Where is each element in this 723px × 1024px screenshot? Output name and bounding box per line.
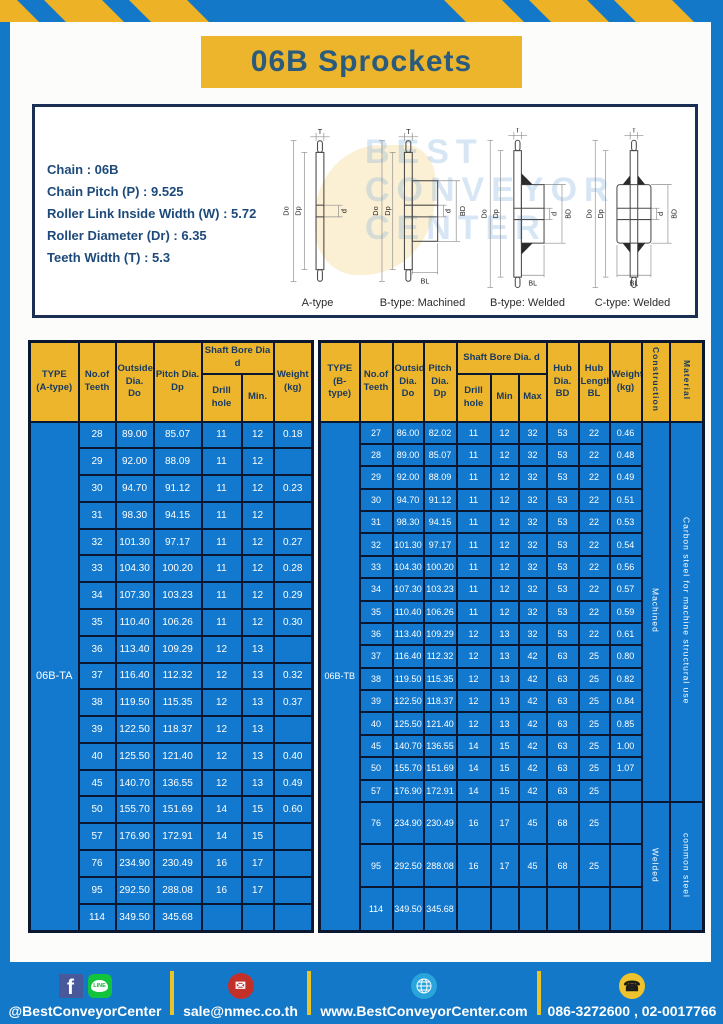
footer-email: ✉ sale@nmec.co.th [174, 962, 307, 1024]
table-cell: 11 [202, 475, 242, 502]
sprocket-c-welded-drawing: T Do Dp d BD BL [581, 128, 685, 296]
table-row: 06B-TB2786.0082.0211123253220.46Machined… [320, 422, 704, 444]
footer-phone: ☎ 086-3272600 , 02-0017766 [541, 962, 723, 1024]
table-cell: 63 [547, 780, 579, 802]
table-cell: 53 [547, 444, 579, 466]
table-cell: 112.32 [424, 645, 457, 667]
table-cell: 11 [202, 502, 242, 529]
table-cell: 0.28 [274, 555, 313, 582]
table-cell: 16 [457, 844, 491, 887]
table-cell: 11 [202, 582, 242, 609]
table-cell [610, 844, 642, 887]
table-cell: 14 [457, 757, 491, 779]
spec-line: Teeth Width (T) : 5.3 [47, 250, 265, 265]
table-cell: 32 [519, 511, 547, 533]
table-cell: 29 [79, 448, 116, 475]
table-cell: 76 [79, 850, 116, 877]
table-cell: 17 [491, 802, 519, 845]
column-header-material: Material [670, 342, 704, 422]
table-cell: 32 [519, 444, 547, 466]
table-cell: 22 [579, 511, 610, 533]
table-cell: 13 [242, 689, 274, 716]
table-cell: 136.55 [424, 735, 457, 757]
table-cell: 15 [242, 823, 274, 850]
stripe-decoration [44, 0, 124, 22]
globe-icon [411, 973, 437, 999]
table-cell: 35 [360, 601, 393, 623]
table-cell: 11 [202, 422, 242, 449]
table-cell [457, 887, 491, 932]
table-cell: 12 [242, 555, 274, 582]
column-header-outside-dia: Outside Dia. Do [393, 342, 424, 422]
page-title: 06B Sprockets [201, 36, 522, 88]
table-cell: 94.15 [154, 502, 202, 529]
table-cell: 31 [360, 511, 393, 533]
sprocket-b-welded-drawing: T Do Dp d BD BL [476, 128, 580, 296]
table-cell: 33 [360, 556, 393, 578]
table-cell: 12 [202, 689, 242, 716]
table-cell: 349.50 [116, 904, 154, 932]
table-cell: 30 [360, 489, 393, 511]
table-cell: 37 [79, 663, 116, 690]
table-cell: 11 [202, 529, 242, 556]
table-cell: 53 [547, 556, 579, 578]
table-cell: 25 [579, 757, 610, 779]
dim-label-dp: Dp [597, 209, 604, 218]
table-cell: 57 [360, 780, 393, 802]
table-cell: 35 [79, 609, 116, 636]
table-cell: 22 [579, 422, 610, 444]
table-cell: 89.00 [116, 422, 154, 449]
column-header-min: Min. [242, 374, 274, 422]
table-cell: 63 [547, 757, 579, 779]
table-cell: 12 [242, 582, 274, 609]
table-cell: 94.70 [116, 475, 154, 502]
table-cell: 118.37 [424, 690, 457, 712]
dim-label-bd: BD [458, 206, 467, 216]
table-cell: 11 [457, 601, 491, 623]
social-handle-text: @BestConveyorCenter [9, 1003, 162, 1019]
table-cell: 82.02 [424, 422, 457, 444]
table-cell: 39 [360, 690, 393, 712]
table-cell: 0.32 [274, 663, 313, 690]
table-cell: 32 [519, 556, 547, 578]
table-cell: 230.49 [424, 802, 457, 845]
top-stripes-decoration [0, 0, 723, 22]
table-cell: 0.59 [610, 601, 642, 623]
table-cell: 11 [202, 448, 242, 475]
table-cell: 0.48 [610, 444, 642, 466]
table-cell: 12 [491, 489, 519, 511]
table-cell: 45 [360, 735, 393, 757]
table-cell: 0.49 [610, 466, 642, 488]
column-header-type: TYPE (B-type) [320, 342, 360, 422]
table-cell: 114 [79, 904, 116, 932]
table-cell: 91.12 [154, 475, 202, 502]
table-cell: 91.12 [424, 489, 457, 511]
table-cell: 0.85 [610, 712, 642, 734]
dim-label-d: d [339, 209, 348, 213]
table-cell: 12 [491, 422, 519, 444]
table-cell: 31 [79, 502, 116, 529]
table-cell: 32 [519, 533, 547, 555]
table-cell: 34 [79, 582, 116, 609]
table-cell: 45 [79, 770, 116, 797]
table-cell: 29 [360, 466, 393, 488]
diagram-panel: BEST CONVEYOR CENTER Chain : 06B Chain P… [32, 104, 698, 318]
table-cell: 34 [360, 578, 393, 600]
table-cell: 0.61 [610, 623, 642, 645]
table-cell: 89.00 [393, 444, 424, 466]
table-cell: 17 [242, 877, 274, 904]
table-cell: 16 [202, 877, 242, 904]
table-cell: 151.69 [154, 796, 202, 823]
table-cell: 53 [547, 601, 579, 623]
table-cell [547, 887, 579, 932]
table-cell: 27 [360, 422, 393, 444]
table-cell: 12 [202, 636, 242, 663]
table-cell [274, 877, 313, 904]
table-cell: 38 [360, 668, 393, 690]
table-cell: 92.00 [116, 448, 154, 475]
dim-label-d: d [443, 209, 452, 213]
table-cell: 13 [242, 743, 274, 770]
spec-line: Chain : 06B [47, 162, 265, 177]
table-cell: 11 [457, 489, 491, 511]
table-cell: 53 [547, 511, 579, 533]
table-cell: 32 [519, 422, 547, 444]
column-header-weight: Weight (kg) [274, 342, 313, 422]
table-cell: 63 [547, 712, 579, 734]
table-cell: 63 [547, 668, 579, 690]
construction-cell: Machined [642, 422, 670, 802]
dim-label-t: T [406, 128, 411, 136]
table-cell: 11 [202, 555, 242, 582]
table-cell: 12 [242, 422, 274, 449]
dim-label-t: T [631, 128, 636, 135]
table-cell: 28 [79, 422, 116, 449]
table-cell [202, 904, 242, 932]
table-cell: 0.29 [274, 582, 313, 609]
diagram-label: C-type: Welded [595, 297, 671, 311]
table-cell: 40 [79, 743, 116, 770]
phone-glyph: ☎ [623, 978, 640, 995]
table-cell: 88.09 [154, 448, 202, 475]
table-cell: 33 [79, 555, 116, 582]
footer-contact-bar: f LINE @BestConveyorCenter ✉ sale@nmec.c… [0, 962, 723, 1024]
dim-label-dp: Dp [492, 209, 499, 218]
table-cell: 32 [519, 489, 547, 511]
table-cell: 0.46 [610, 422, 642, 444]
table-cell: 42 [519, 690, 547, 712]
table-cell: 88.09 [424, 466, 457, 488]
table-cell: 14 [202, 796, 242, 823]
table-cell: 13 [242, 636, 274, 663]
table-cell: 0.27 [274, 529, 313, 556]
table-cell: 22 [579, 533, 610, 555]
table-cell: 121.40 [424, 712, 457, 734]
table-cell: 12 [457, 623, 491, 645]
stripe-decoration [129, 0, 209, 22]
table-cell: 100.20 [424, 556, 457, 578]
table-cell: 13 [491, 712, 519, 734]
stripe-decoration [444, 0, 524, 22]
table-cell: 22 [579, 623, 610, 645]
dim-label-bl: BL [528, 281, 537, 288]
table-cell: 30 [79, 475, 116, 502]
column-header-shaft-bore: Shaft Bore Dia d [202, 342, 274, 374]
dim-label-do: Do [586, 209, 593, 218]
diagram-a-type: T Do Dp d A-type [265, 115, 370, 311]
table-cell: 107.30 [116, 582, 154, 609]
table-cell: 234.90 [393, 802, 424, 845]
table-cell: 42 [519, 668, 547, 690]
table-cell: 349.50 [393, 887, 424, 932]
table-cell: 11 [457, 533, 491, 555]
table-cell: 100.20 [154, 555, 202, 582]
table-cell: 0.30 [274, 609, 313, 636]
table-cell: 53 [547, 533, 579, 555]
material-cell: Carbon steel for machine structural use [670, 422, 704, 802]
table-cell: 12 [242, 609, 274, 636]
diagram-label: A-type [302, 297, 334, 311]
table-cell: 12 [202, 663, 242, 690]
table-cell [610, 887, 642, 932]
diagram-b-type-machined: T Do Dp d BD BL B-type: Machined [370, 115, 475, 311]
table-cell [274, 850, 313, 877]
table-cell [242, 904, 274, 932]
table-cell: 101.30 [393, 533, 424, 555]
type-label-cell: 06B-TA [30, 422, 79, 932]
table-cell: 288.08 [154, 877, 202, 904]
table-cell: 98.30 [393, 511, 424, 533]
table-cell: 14 [457, 735, 491, 757]
table-cell: 12 [457, 690, 491, 712]
table-cell: 0.51 [610, 489, 642, 511]
diagram-c-type-welded: T Do Dp d BD BL C-type: Welded [580, 115, 685, 311]
table-cell: 0.56 [610, 556, 642, 578]
table-cell: 13 [242, 716, 274, 743]
table-cell: 11 [457, 466, 491, 488]
table-cell: 98.30 [116, 502, 154, 529]
table-cell: 14 [202, 823, 242, 850]
spec-line: Chain Pitch (P) : 9.525 [47, 184, 265, 199]
phone-text: 086-3272600 , 02-0017766 [548, 1003, 717, 1019]
table-cell: 36 [79, 636, 116, 663]
table-cell: 12 [202, 716, 242, 743]
table-cell: 106.26 [424, 601, 457, 623]
table-cell: 38 [79, 689, 116, 716]
table-cell: 12 [457, 668, 491, 690]
table-cell: 0.40 [274, 743, 313, 770]
table-cell: 12 [491, 466, 519, 488]
website-text: www.BestConveyorCenter.com [320, 1003, 527, 1019]
table-cell: 53 [547, 489, 579, 511]
spec-line: Roller Diameter (Dr) : 6.35 [47, 228, 265, 243]
table-cell: 12 [457, 645, 491, 667]
column-header-label: Material [681, 360, 692, 400]
table-cell: 112.32 [154, 663, 202, 690]
table-a-type: TYPE (A-type) No.of Teeth Outside Dia. D… [28, 340, 314, 933]
dim-label-bl: BL [420, 276, 429, 285]
table-cell: 234.90 [116, 850, 154, 877]
table-cell: 57 [79, 823, 116, 850]
table-cell: 25 [579, 844, 610, 887]
sprocket-a-type-drawing: T Do Dp d [279, 128, 357, 296]
column-header-hub-dia: Hub Dia. BD [547, 342, 579, 422]
table-cell: 1.07 [610, 757, 642, 779]
catalog-page: 06B Sprockets BEST CONVEYOR CENTER Chain… [0, 0, 723, 1024]
table-cell [274, 823, 313, 850]
column-header-label: Construction [650, 347, 661, 412]
column-header-max: Max [519, 374, 547, 422]
table-cell: 101.30 [116, 529, 154, 556]
table-cell: 12 [202, 743, 242, 770]
table-cell: 94.70 [393, 489, 424, 511]
table-cell: 53 [547, 623, 579, 645]
table-cell: 22 [579, 556, 610, 578]
table-cell: 0.60 [274, 796, 313, 823]
table-cell: 14 [457, 780, 491, 802]
table-cell: 25 [579, 735, 610, 757]
column-header-weight: Weight (kg) [610, 342, 642, 422]
table-cell: 122.50 [116, 716, 154, 743]
table-cell: 292.50 [116, 877, 154, 904]
table-cell: 32 [79, 529, 116, 556]
table-cell: 1.00 [610, 735, 642, 757]
table-cell: 22 [579, 601, 610, 623]
table-cell: 97.17 [424, 533, 457, 555]
table-cell [274, 716, 313, 743]
table-cell [274, 636, 313, 663]
table-cell: 140.70 [116, 770, 154, 797]
stripe-decoration [0, 0, 39, 22]
table-cell: 12 [491, 533, 519, 555]
table-cell: 0.37 [274, 689, 313, 716]
table-cell: 22 [579, 444, 610, 466]
table-cell: 32 [519, 466, 547, 488]
table-cell: 25 [579, 712, 610, 734]
table-cell: 122.50 [393, 690, 424, 712]
table-cell: 40 [360, 712, 393, 734]
table-cell: 288.08 [424, 844, 457, 887]
table-cell: 11 [457, 556, 491, 578]
table-cell: 12 [242, 448, 274, 475]
facebook-glyph: f [67, 978, 74, 998]
table-cell: 0.53 [610, 511, 642, 533]
table-cell: 25 [579, 668, 610, 690]
dim-label-t: T [317, 128, 322, 136]
table-cell: 107.30 [393, 578, 424, 600]
table-cell: 36 [360, 623, 393, 645]
table-cell: 42 [519, 645, 547, 667]
stripe-decoration [529, 0, 609, 22]
table-cell: 13 [491, 645, 519, 667]
dim-label-bl: BL [629, 281, 638, 288]
diagram-b-type-welded: T Do Dp d BD BL B-type: Welded [475, 115, 580, 311]
table-row: 06B-TA2889.0085.0711120.18 [30, 422, 313, 449]
table-cell: 151.69 [424, 757, 457, 779]
diagram-label: B-type: Welded [490, 297, 565, 311]
table-cell: 42 [519, 757, 547, 779]
type-label-cell: 06B-TB [320, 422, 360, 932]
table-cell: 25 [579, 690, 610, 712]
table-cell: 11 [457, 444, 491, 466]
column-header-outside-dia: Outside Dia. Do [116, 342, 154, 422]
dim-label-bd: BD [565, 209, 572, 219]
table-cell: 113.40 [116, 636, 154, 663]
table-cell: 172.91 [424, 780, 457, 802]
table-cell: 32 [519, 578, 547, 600]
dim-label-bd: BD [671, 209, 678, 219]
table-cell: 16 [457, 802, 491, 845]
table-cell: 68 [547, 802, 579, 845]
table-cell: 110.40 [116, 609, 154, 636]
table-cell: 345.68 [424, 887, 457, 932]
email-glyph: ✉ [235, 978, 246, 994]
table-cell: 15 [491, 757, 519, 779]
table-cell: 116.40 [393, 645, 424, 667]
table-cell: 94.15 [424, 511, 457, 533]
table-cell: 155.70 [116, 796, 154, 823]
table-cell: 17 [491, 844, 519, 887]
sprocket-b-machined-drawing: T Do Dp d BD BL [371, 128, 475, 296]
table-cell: 115.35 [154, 689, 202, 716]
table-cell: 114 [360, 887, 393, 932]
dim-label-do: Do [281, 206, 290, 215]
table-cell: 140.70 [393, 735, 424, 757]
dim-label-t: T [515, 128, 520, 135]
table-cell: 119.50 [393, 668, 424, 690]
table-cell: 63 [547, 735, 579, 757]
column-header-teeth: No.of Teeth [360, 342, 393, 422]
table-cell [519, 887, 547, 932]
table-cell: 32 [519, 601, 547, 623]
table-cell: 37 [360, 645, 393, 667]
table-cell: 0.82 [610, 668, 642, 690]
table-cell: 25 [579, 645, 610, 667]
table-cell: 11 [457, 578, 491, 600]
dim-label-do: Do [481, 209, 488, 218]
table-cell [610, 802, 642, 845]
table-cell: 32 [519, 623, 547, 645]
line-icon: LINE [88, 974, 112, 998]
table-cell: 95 [360, 844, 393, 887]
table-cell: 230.49 [154, 850, 202, 877]
table-cell: 53 [547, 578, 579, 600]
diagram-label: B-type: Machined [380, 297, 466, 311]
table-cell: 12 [491, 601, 519, 623]
table-cell: 109.29 [424, 623, 457, 645]
table-cell: 103.23 [424, 578, 457, 600]
table-cell: 13 [491, 690, 519, 712]
table-cell: 45 [519, 802, 547, 845]
table-cell: 0.54 [610, 533, 642, 555]
facebook-icon: f [59, 974, 83, 998]
table-cell: 12 [242, 529, 274, 556]
table-cell: 345.68 [154, 904, 202, 932]
table-cell: 118.37 [154, 716, 202, 743]
table-cell: 109.29 [154, 636, 202, 663]
table-cell: 0.18 [274, 422, 313, 449]
column-header-drill-hole: Drill hole [457, 374, 491, 422]
table-row: 76234.90230.491617456825Weldedcommon ste… [320, 802, 704, 845]
dim-label-d: d [658, 212, 665, 216]
table-cell: 12 [242, 475, 274, 502]
table-cell: 119.50 [116, 689, 154, 716]
table-cell: 76 [360, 802, 393, 845]
table-cell: 12 [491, 444, 519, 466]
